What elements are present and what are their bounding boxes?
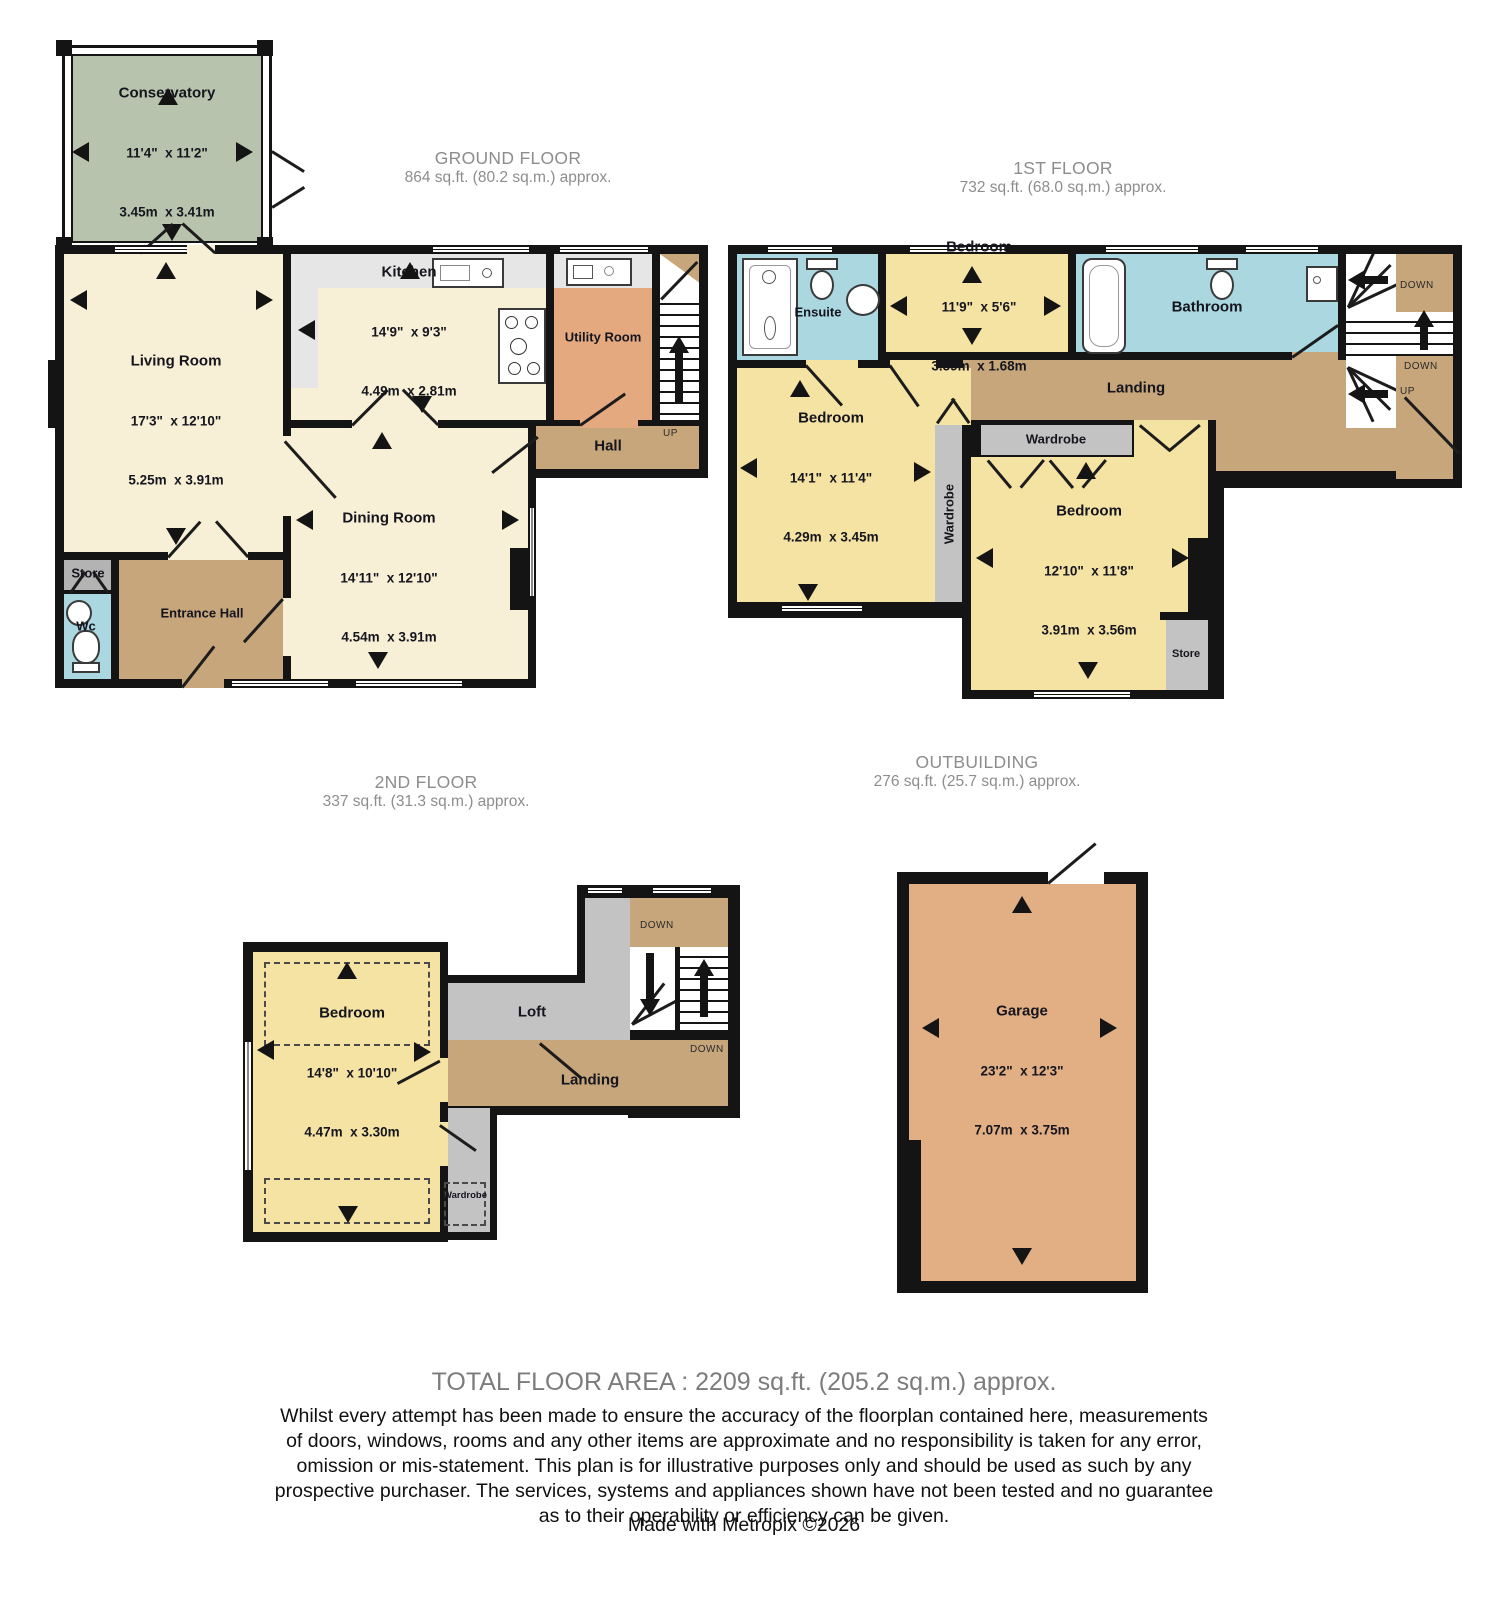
stair-arrow-head bbox=[669, 336, 689, 353]
stair-down-label: DOWN bbox=[690, 1044, 724, 1055]
direction-marker bbox=[162, 224, 182, 241]
window bbox=[243, 1042, 253, 1170]
entrance-hall-label: Entrance Hall bbox=[160, 606, 243, 623]
direction-marker bbox=[296, 510, 313, 530]
door-opening bbox=[168, 552, 248, 560]
living-room-label: Living Room 17'3" x 12'10" 5.25m x 3.91m bbox=[128, 310, 223, 531]
stair-up-label: UP bbox=[1400, 386, 1415, 397]
landing-2f-label: Landing bbox=[561, 1070, 619, 1090]
room-name: Bedroom bbox=[783, 408, 878, 428]
stair-arrow-head bbox=[1414, 310, 1434, 327]
stair-arrow bbox=[1420, 324, 1428, 350]
direction-marker bbox=[798, 584, 818, 601]
store-gf-label: Store bbox=[71, 566, 104, 583]
staircase bbox=[1346, 254, 1396, 428]
first-floor-title: 1ST FLOOR bbox=[960, 158, 1167, 179]
direction-marker bbox=[368, 652, 388, 669]
direction-marker bbox=[158, 88, 178, 105]
kitchen-label: Kitchen 14'9" x 9'3" 4.49m x 2.81m bbox=[361, 221, 456, 442]
window bbox=[1106, 245, 1198, 254]
ground-floor-header: GROUND FLOOR 864 sq.ft. (80.2 sq.m.) app… bbox=[405, 148, 612, 187]
direction-marker bbox=[337, 962, 357, 979]
wardrobe-2f-label: Wardrobe bbox=[443, 1190, 487, 1202]
wall bbox=[909, 1140, 921, 1281]
room-dims-metric: 4.49m x 2.81m bbox=[361, 382, 456, 400]
room-dims-imperial: 23'2" x 12'3" bbox=[974, 1062, 1069, 1080]
ensuite-label: Ensuite bbox=[795, 305, 842, 322]
room-dims-metric: 3.45m x 3.41m bbox=[119, 203, 216, 221]
direction-marker bbox=[257, 1040, 274, 1060]
bathroom-label: Bathroom bbox=[1172, 297, 1243, 317]
bath-icon bbox=[1082, 258, 1126, 354]
window bbox=[1034, 690, 1130, 699]
hob-icon bbox=[498, 308, 546, 384]
room-name: Dining Room bbox=[340, 508, 437, 528]
direction-marker bbox=[156, 262, 176, 279]
wc-label: Wc bbox=[76, 619, 96, 636]
ground-floor-title: GROUND FLOOR bbox=[405, 148, 612, 169]
wardrobe-vertical-label: Wardrobe bbox=[942, 484, 957, 544]
bedroom-front-label: Bedroom 11'9" x 5'6" 3.59m x 1.68m bbox=[931, 196, 1026, 417]
direction-marker bbox=[790, 380, 810, 397]
wardrobe-outline bbox=[444, 1182, 486, 1226]
direction-marker bbox=[740, 458, 757, 478]
window bbox=[653, 886, 711, 895]
room-dims-metric: 3.59m x 1.68m bbox=[931, 357, 1026, 375]
staircase bbox=[660, 254, 699, 420]
stair-arrow-head bbox=[1348, 384, 1365, 404]
door-opening bbox=[580, 420, 638, 428]
window bbox=[1246, 245, 1318, 254]
second-floor-area: 337 sq.ft. (31.3 sq.m.) approx. bbox=[323, 793, 530, 811]
direction-marker bbox=[1076, 462, 1096, 479]
wall bbox=[1160, 612, 1208, 620]
direction-marker bbox=[70, 290, 87, 310]
room-dims-imperial: 11'9" x 5'6" bbox=[931, 298, 1026, 316]
direction-marker bbox=[962, 328, 982, 345]
direction-marker bbox=[1044, 296, 1061, 316]
toilet-icon bbox=[806, 258, 838, 270]
direction-marker bbox=[72, 142, 89, 162]
utility-label: Utility Room bbox=[565, 330, 642, 347]
total-floor-area: TOTAL FLOOR AREA : 2209 sq.ft. (205.2 sq… bbox=[432, 1368, 1057, 1397]
stair-arrow bbox=[1362, 276, 1388, 284]
room-name: Bedroom bbox=[931, 237, 1026, 257]
wall bbox=[48, 360, 62, 428]
stair-arrow bbox=[700, 973, 708, 1017]
dining-room-label: Dining Room 14'11" x 12'10" 4.54m x 3.91… bbox=[340, 467, 437, 688]
toilet-icon bbox=[1206, 258, 1238, 270]
stair-arrow bbox=[1362, 390, 1388, 398]
direction-marker bbox=[166, 528, 186, 545]
stair-treads bbox=[1346, 312, 1396, 358]
window bbox=[560, 245, 648, 254]
room-dims-imperial: 11'4" x 11'2" bbox=[119, 144, 216, 162]
wall bbox=[257, 40, 273, 56]
room-dims-imperial: 17'3" x 12'10" bbox=[128, 412, 223, 430]
wall bbox=[1188, 538, 1208, 612]
toilet-icon bbox=[810, 270, 834, 300]
wall bbox=[510, 548, 528, 610]
direction-marker bbox=[414, 1042, 431, 1062]
sink-icon bbox=[846, 284, 880, 316]
stair-arrow-head bbox=[640, 999, 660, 1016]
direction-marker bbox=[890, 296, 907, 316]
direction-marker bbox=[298, 320, 315, 340]
room-name: Living Room bbox=[128, 351, 223, 371]
room-name: Bedroom bbox=[304, 1003, 399, 1023]
toilet-icon bbox=[72, 662, 100, 673]
stair-arrow bbox=[646, 953, 654, 999]
second-floor-title: 2ND FLOOR bbox=[323, 772, 530, 793]
direction-marker bbox=[236, 142, 253, 162]
direction-marker bbox=[502, 510, 519, 530]
door-line bbox=[271, 186, 305, 208]
window bbox=[115, 245, 187, 254]
room-dims-metric: 4.54m x 3.91m bbox=[340, 628, 437, 646]
staircase bbox=[630, 947, 675, 1030]
shower-icon bbox=[742, 258, 798, 356]
first-floor-header: 1ST FLOOR 732 sq.ft. (68.0 sq.m.) approx… bbox=[960, 158, 1167, 197]
direction-marker bbox=[914, 462, 931, 482]
window bbox=[768, 245, 832, 254]
hall-label: Hall bbox=[594, 436, 622, 456]
second-floor-header: 2ND FLOOR 337 sq.ft. (31.3 sq.m.) approx… bbox=[323, 772, 530, 811]
room-dims-imperial: 14'8" x 10'10" bbox=[304, 1064, 399, 1082]
loft-label: Loft bbox=[518, 1002, 546, 1022]
stair-down-label: DOWN bbox=[640, 920, 674, 931]
door-line bbox=[271, 150, 305, 172]
sink-icon bbox=[566, 258, 632, 286]
sink-icon bbox=[1306, 266, 1338, 302]
direction-marker bbox=[976, 548, 993, 568]
bedroom-right-label: Bedroom 12'10" x 11'8" 3.91m x 3.56m bbox=[1041, 460, 1136, 681]
ground-floor-area: 864 sq.ft. (80.2 sq.m.) approx. bbox=[405, 169, 612, 187]
stair-arrow bbox=[675, 350, 683, 402]
room-name: Garage bbox=[974, 1001, 1069, 1021]
door-opening bbox=[890, 360, 936, 368]
room-dims-metric: 3.91m x 3.56m bbox=[1041, 621, 1136, 639]
direction-marker bbox=[962, 266, 982, 283]
stair-down-label: DOWN bbox=[1400, 280, 1434, 291]
window bbox=[588, 886, 622, 895]
direction-marker bbox=[1012, 896, 1032, 913]
room-dims-metric: 5.25m x 3.91m bbox=[128, 471, 223, 489]
stair-arrow-head bbox=[1348, 270, 1365, 290]
outbuilding-title: OUTBUILDING bbox=[874, 752, 1081, 773]
direction-marker bbox=[256, 290, 273, 310]
bedroom-left-label: Bedroom 14'1" x 11'4" 4.29m x 3.45m bbox=[783, 367, 878, 588]
staircase bbox=[680, 947, 728, 1030]
direction-marker bbox=[922, 1018, 939, 1038]
window bbox=[528, 508, 536, 596]
room-dims-imperial: 12'10" x 11'8" bbox=[1041, 562, 1136, 580]
credit-text: Made with Metropix ©2026 bbox=[628, 1514, 860, 1537]
room-dims-imperial: 14'9" x 9'3" bbox=[361, 323, 456, 341]
garage-label: Garage 23'2" x 12'3" 7.07m x 3.75m bbox=[974, 960, 1069, 1181]
direction-marker bbox=[1172, 548, 1189, 568]
floorplan-page: GROUND FLOOR 864 sq.ft. (80.2 sq.m.) app… bbox=[0, 0, 1508, 1600]
toilet-icon bbox=[1210, 270, 1234, 300]
wardrobe-top-label: Wardrobe bbox=[1026, 432, 1086, 449]
direction-marker bbox=[1078, 662, 1098, 679]
first-floor-area: 732 sq.ft. (68.0 sq.m.) approx. bbox=[960, 179, 1167, 197]
stair-down-label: DOWN bbox=[1404, 361, 1438, 372]
room-dims-metric: 4.47m x 3.30m bbox=[304, 1123, 399, 1141]
room-dims-metric: 7.07m x 3.75m bbox=[974, 1121, 1069, 1139]
direction-marker bbox=[338, 1206, 358, 1223]
window bbox=[232, 679, 328, 688]
direction-marker bbox=[400, 262, 420, 279]
direction-marker bbox=[1012, 1248, 1032, 1265]
window bbox=[782, 604, 862, 613]
direction-marker bbox=[372, 432, 392, 449]
outbuilding-area: 276 sq.ft. (25.7 sq.m.) approx. bbox=[874, 773, 1081, 791]
disclaimer-text: Whilst every attempt has been made to en… bbox=[264, 1404, 1224, 1529]
wall bbox=[56, 40, 72, 56]
room-name: Bedroom bbox=[1041, 501, 1136, 521]
outbuilding-header: OUTBUILDING 276 sq.ft. (25.7 sq.m.) appr… bbox=[874, 752, 1081, 791]
door-opening bbox=[440, 1058, 448, 1102]
bedroom-2f-label: Bedroom 14'8" x 10'10" 4.47m x 3.30m bbox=[304, 962, 399, 1183]
stair-arrow-head bbox=[694, 959, 714, 976]
room-dims-imperial: 14'1" x 11'4" bbox=[783, 469, 878, 487]
store-1f-label: Store bbox=[1172, 648, 1200, 660]
landing-1f-label: Landing bbox=[1107, 378, 1165, 398]
door-opening bbox=[283, 598, 291, 656]
room-dims-metric: 4.29m x 3.45m bbox=[783, 528, 878, 546]
stair-up-label: UP bbox=[663, 428, 678, 439]
direction-marker bbox=[1100, 1018, 1117, 1038]
room-dims-imperial: 14'11" x 12'10" bbox=[340, 569, 437, 587]
direction-marker bbox=[412, 396, 432, 413]
